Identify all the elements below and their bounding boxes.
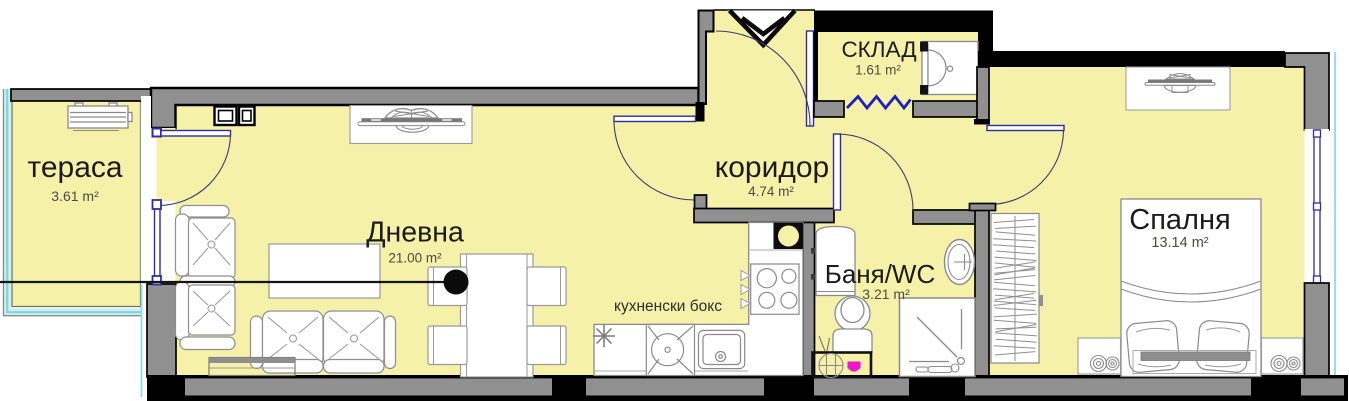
svg-text:СКЛАД: СКЛАД xyxy=(841,37,916,62)
svg-text:1.61 m²: 1.61 m² xyxy=(855,63,901,78)
svg-text:Баня/WC: Баня/WC xyxy=(825,259,936,289)
svg-text:4.74 m²: 4.74 m² xyxy=(748,184,794,199)
svg-text:13.14 m²: 13.14 m² xyxy=(1151,235,1208,251)
svg-text:3.21 m²: 3.21 m² xyxy=(862,286,910,302)
svg-text:кухненски бокс: кухненски бокс xyxy=(614,298,722,315)
svg-text:коридор: коридор xyxy=(715,151,829,184)
svg-text:Спалня: Спалня xyxy=(1129,204,1230,236)
svg-text:Дневна: Дневна xyxy=(366,217,464,249)
svg-text:тераса: тераса xyxy=(27,151,122,184)
svg-text:3.61 m²: 3.61 m² xyxy=(51,188,99,204)
svg-text:21.00 m²: 21.00 m² xyxy=(388,251,442,266)
